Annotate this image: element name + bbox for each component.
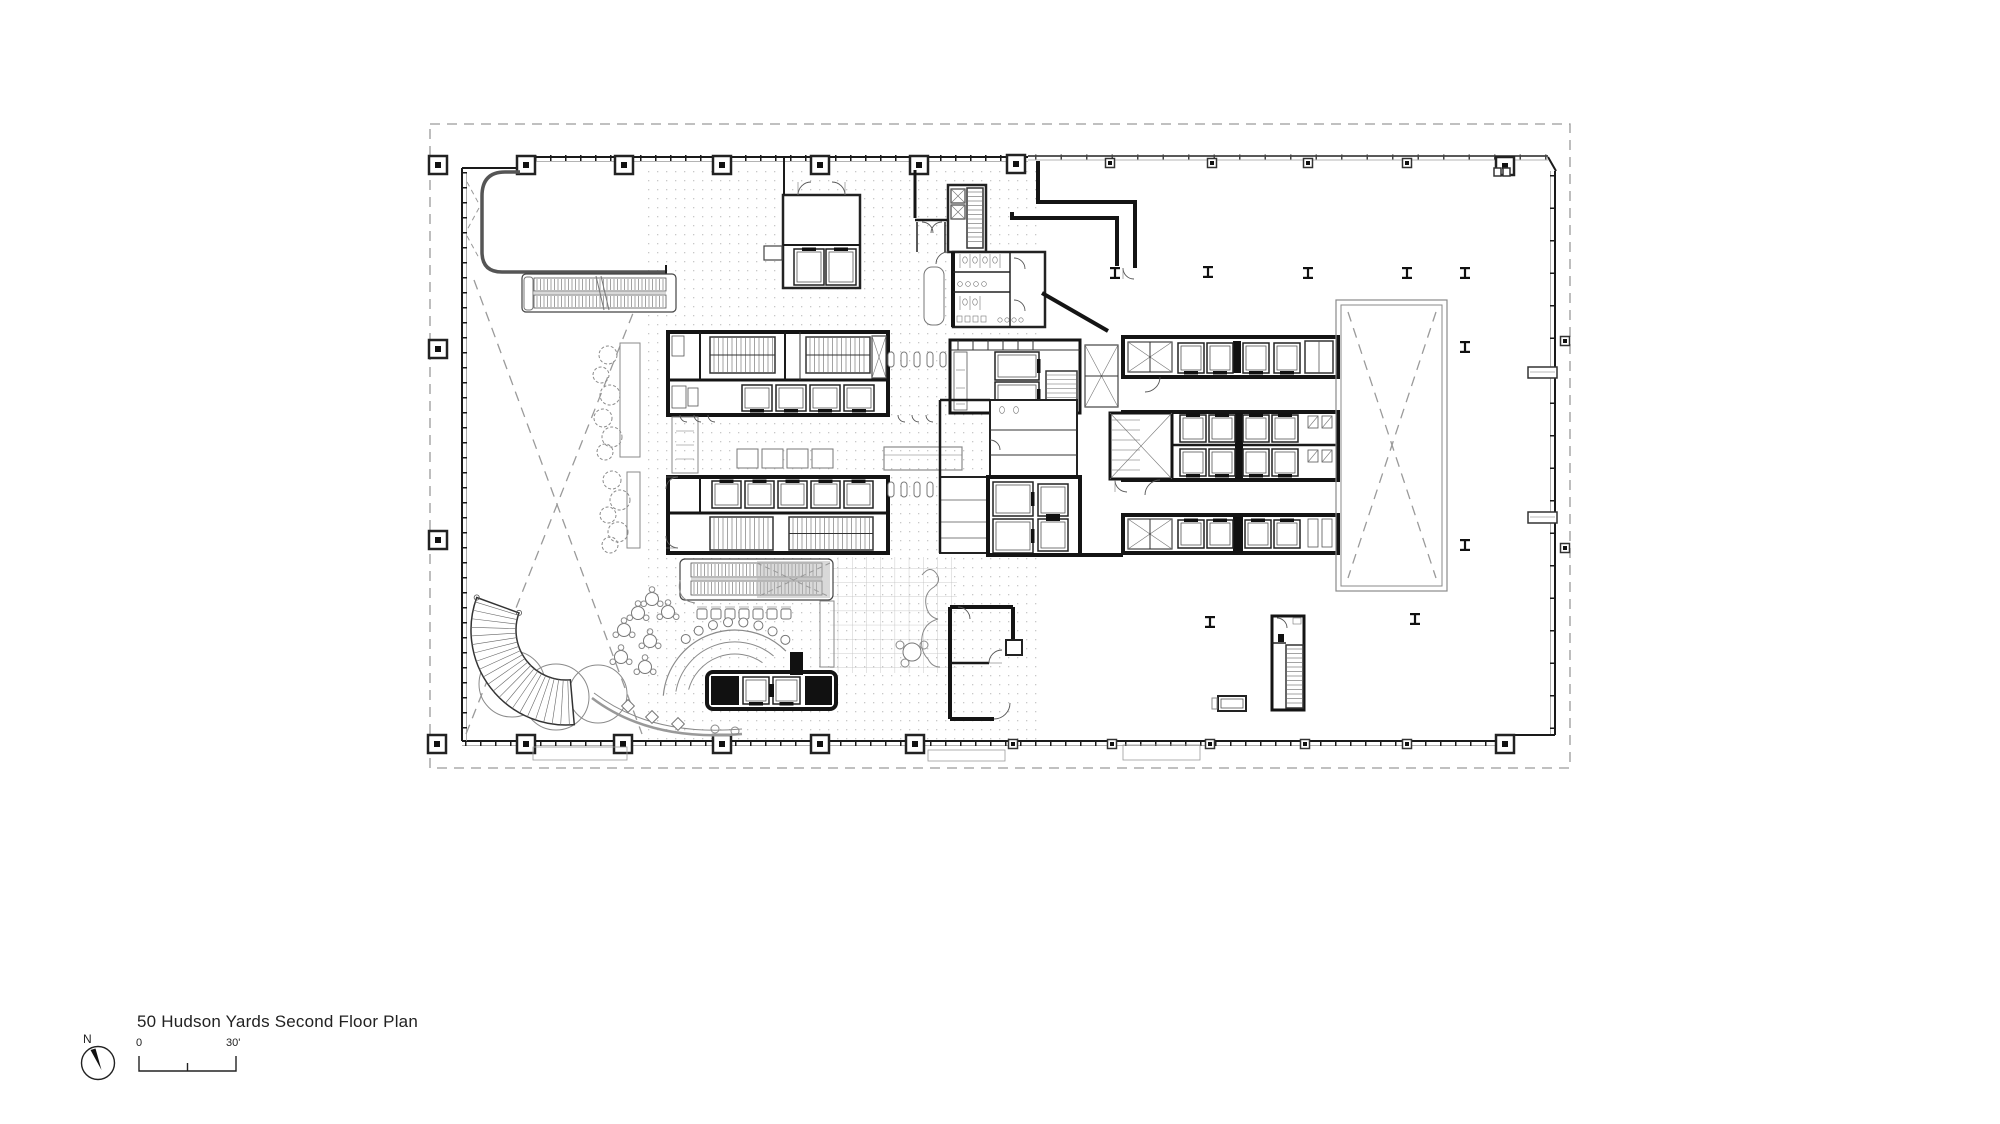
north-arrow-icon xyxy=(78,1044,120,1086)
scale-bar-start-label: 0 xyxy=(136,1037,142,1049)
architectural-sheet: N 0 30' 50 Hudson Yards Second Floor Pla… xyxy=(0,0,2000,1124)
scale-bar xyxy=(138,1052,248,1078)
floor-plan-drawing xyxy=(0,0,2000,1124)
plan-title: 50 Hudson Yards Second Floor Plan xyxy=(137,1012,418,1032)
scale-bar-end-label: 30' xyxy=(226,1037,240,1049)
